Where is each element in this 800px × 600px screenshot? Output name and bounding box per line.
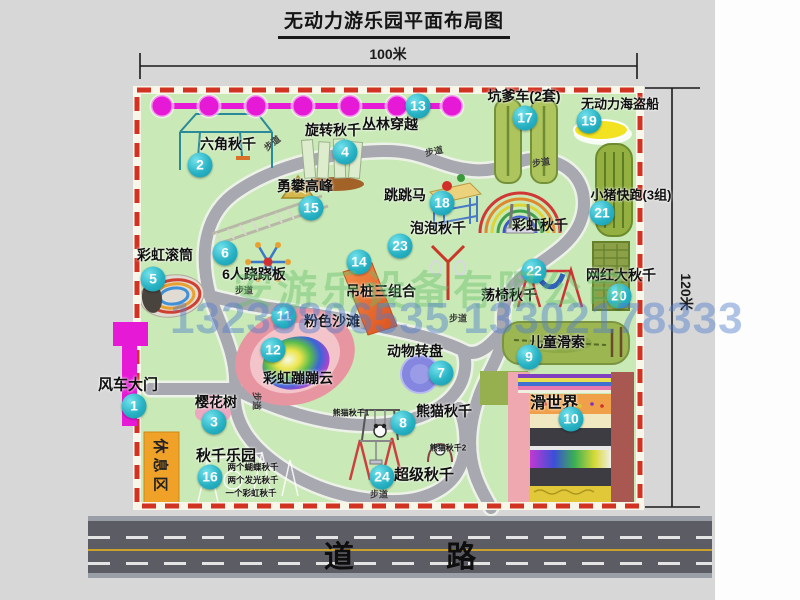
- road-strip: 道 路: [88, 516, 712, 578]
- road-label: 道 路: [282, 532, 518, 576]
- big-swing-frame: [593, 242, 629, 310]
- height-dimension-label: 120米: [676, 273, 696, 310]
- animal-turntable-shape: [401, 355, 439, 393]
- screenshot-root: 无动力游乐园平面布局图 100米 120米 休息区 风车大门1六角秋千2樱花树3…: [0, 0, 800, 600]
- children-zipline-shape: [503, 322, 629, 364]
- rest-area-label: 休息区: [151, 438, 172, 495]
- slide-lanes: [518, 374, 624, 393]
- page-title: 无动力游乐园平面布局图: [278, 6, 510, 39]
- piggy-run-track: [596, 144, 632, 236]
- pirate-ship-shape: [574, 120, 632, 145]
- width-dimension-label: 100米: [369, 44, 406, 64]
